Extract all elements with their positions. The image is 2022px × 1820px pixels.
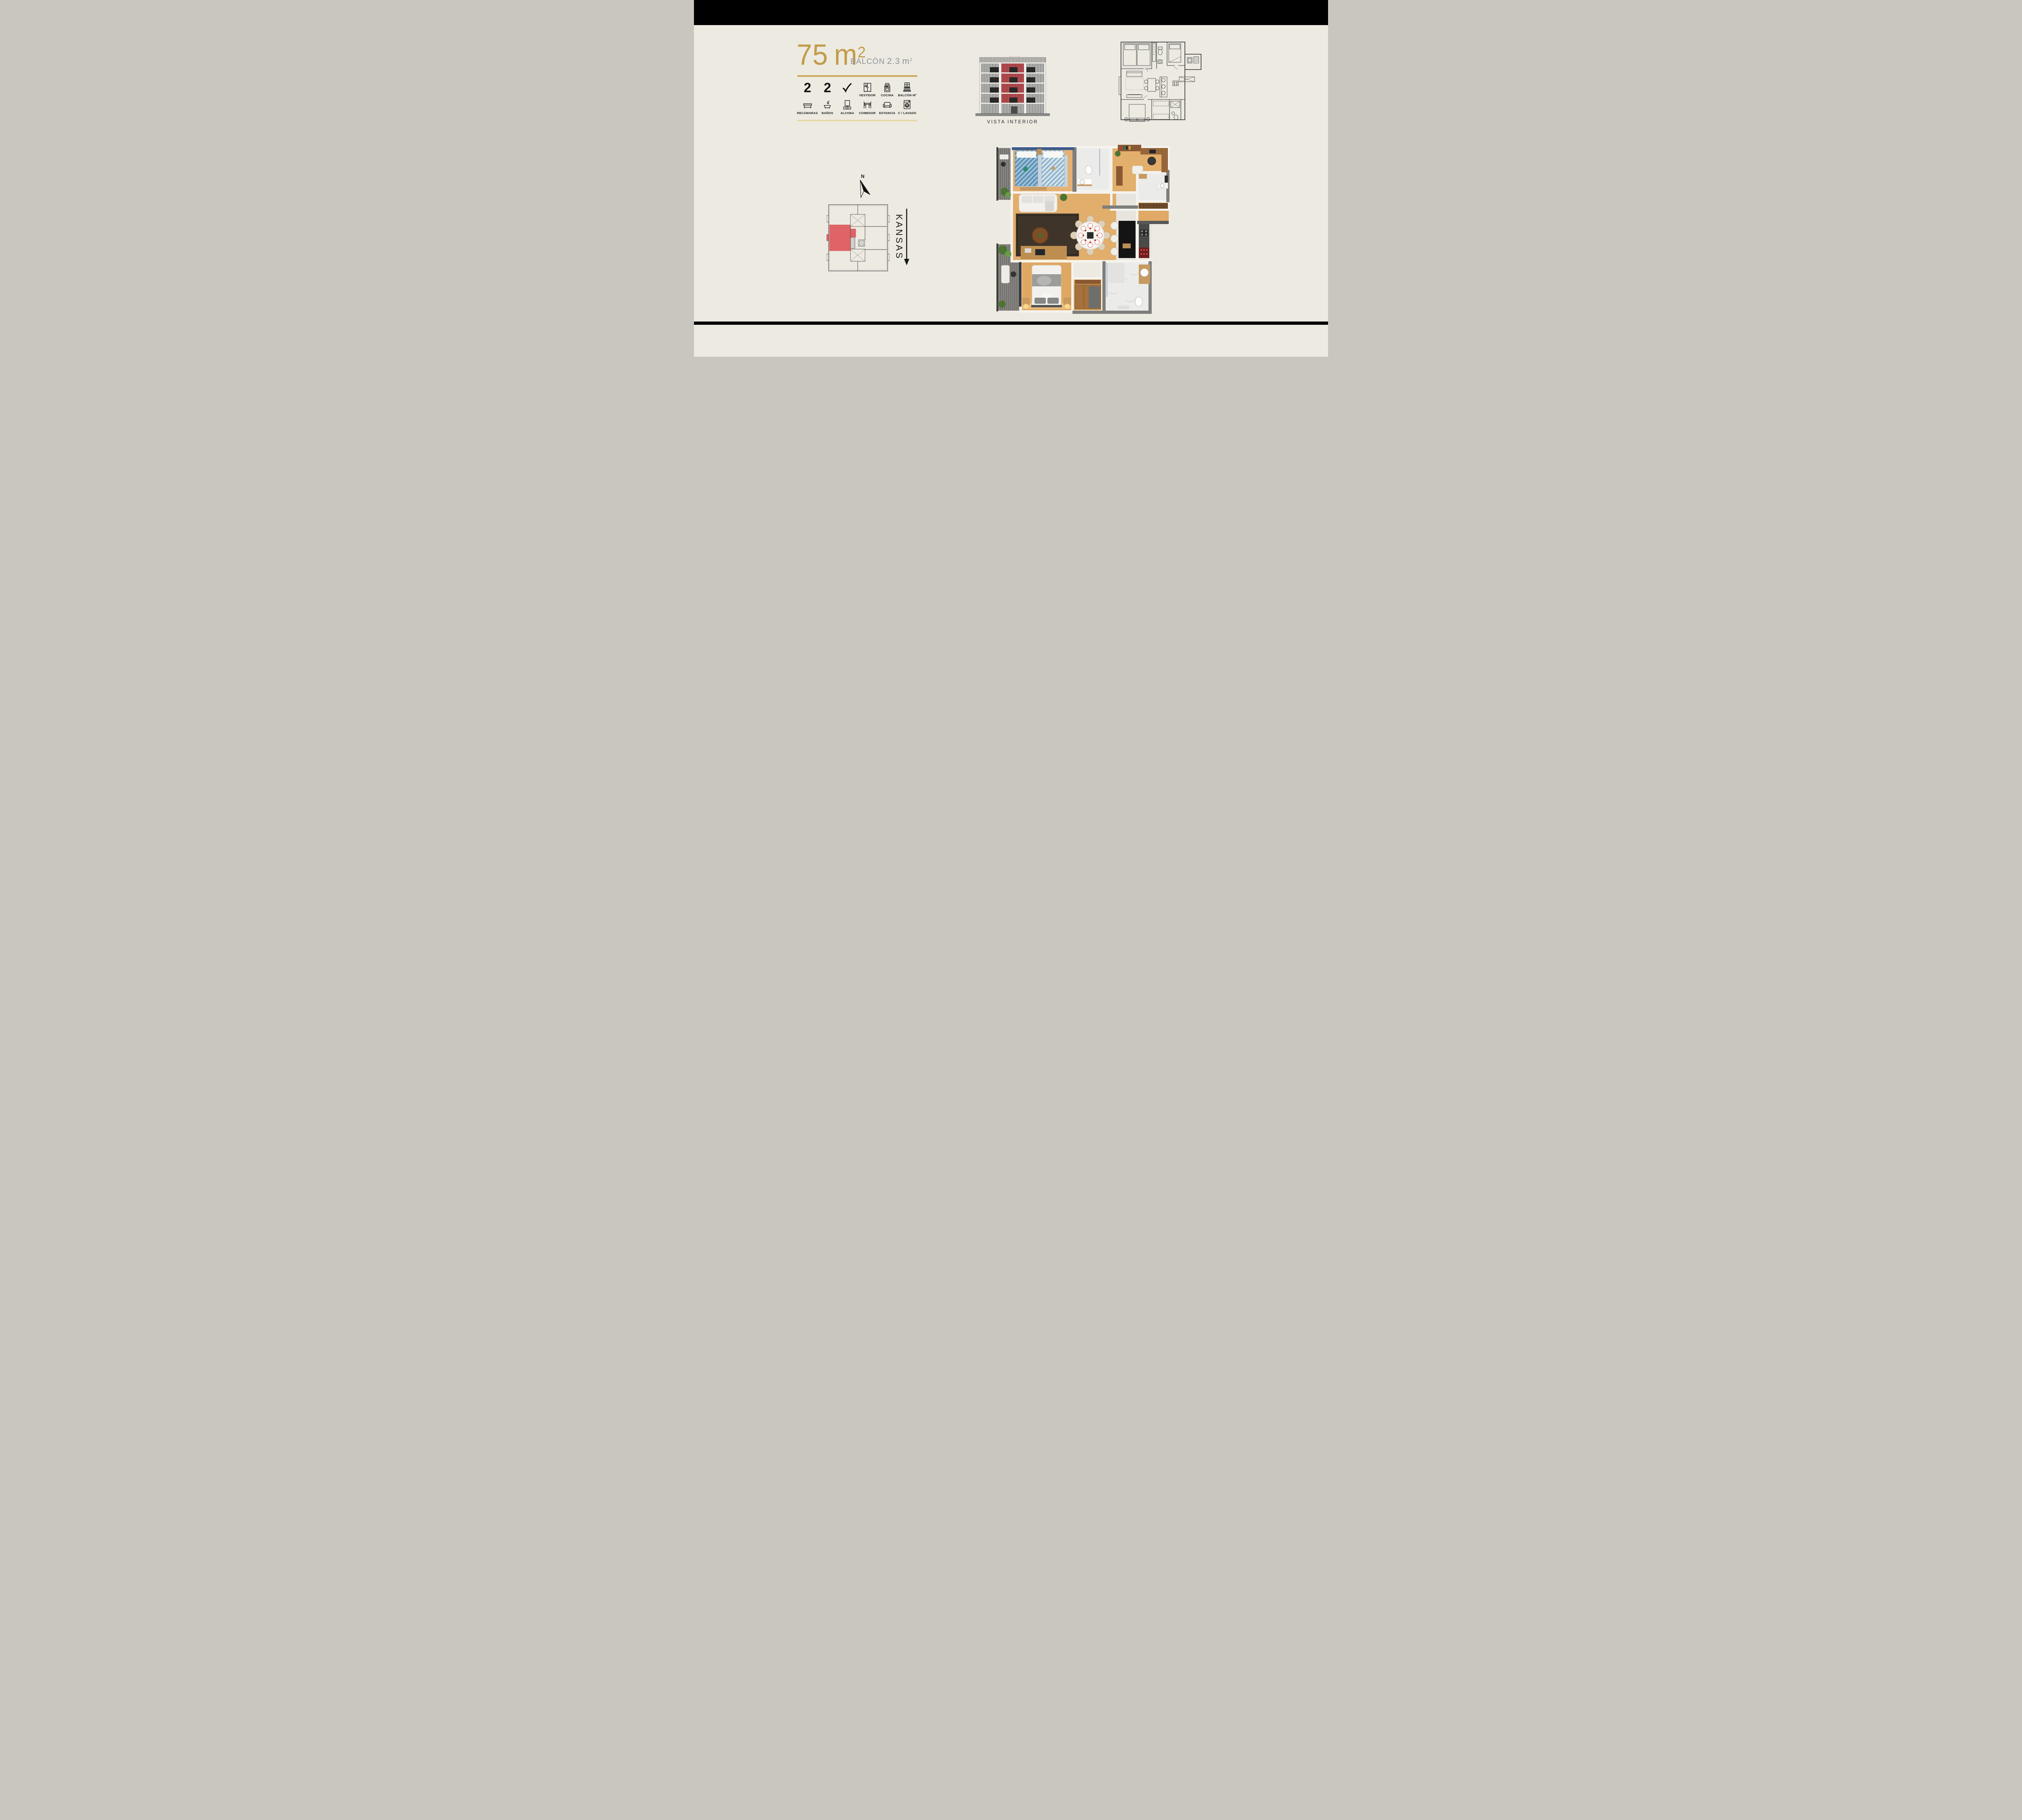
street-direction-arrow — [903, 207, 911, 267]
check-icon — [842, 82, 852, 93]
sofa-icon — [882, 99, 893, 110]
tv-console-icon — [842, 99, 852, 110]
keyplan — [827, 203, 890, 273]
keyplan-unit-walls — [850, 205, 887, 271]
plan2d-living-dining — [1126, 71, 1165, 97]
tan-rule — [797, 120, 917, 121]
plan2d-kitchen — [1160, 57, 1199, 97]
top-black-bar — [694, 0, 1328, 25]
brochure-slide: 75 m2 BALCÓN 2.3 m2 2 2 VESTIDOR — [694, 0, 1328, 357]
plan2d-bedroom1 — [1123, 43, 1156, 67]
stove-icon — [882, 82, 893, 93]
keyplan-highlighted-unit — [829, 225, 856, 251]
plan2d-closet-bath2 — [1153, 101, 1180, 120]
wardrobe-icon — [862, 82, 873, 93]
plan2d-bathroom1 — [1158, 47, 1162, 63]
plan2d-alcoba — [1169, 44, 1181, 62]
bed-icon — [802, 99, 813, 110]
building-elevation — [975, 56, 1050, 117]
bathrooms-count: 2 — [817, 78, 837, 97]
features-row-bottom: RECÁMARAS BAÑOS ALCOBA — [797, 97, 917, 115]
feature-balcon-m2: BALCÓN M² — [897, 78, 917, 97]
bedrooms-count: 2 — [797, 78, 817, 97]
elevation-windows — [981, 63, 1044, 114]
keyplan-core — [850, 214, 865, 261]
gold-rule — [797, 75, 917, 77]
balcony-icon — [902, 82, 913, 93]
plan3d-closet-hall — [1139, 203, 1168, 209]
feature-c-lavado: C / LAVADO — [897, 97, 917, 115]
plan2d-outer-walls — [1119, 42, 1201, 120]
washing-machine-icon — [902, 99, 912, 110]
balcony-area: BALCÓN 2.3 m2 — [850, 57, 913, 66]
dining-set-icon — [862, 99, 873, 110]
elevation-caption: VISTA INTERIOR — [967, 120, 1058, 125]
floorplan-3d-render — [996, 144, 1171, 315]
plan2d-master-bedroom — [1125, 104, 1151, 121]
bathtub-icon — [822, 99, 833, 110]
floorplan-2d — [1118, 40, 1203, 123]
features-row-top: 2 2 VESTIDOR COCINA — [797, 78, 917, 97]
svg-text:N: N — [861, 174, 865, 179]
north-arrow-icon: N — [854, 173, 872, 199]
bottom-divider-bar — [694, 322, 1328, 325]
keyplan-unit-balcony — [827, 235, 829, 241]
